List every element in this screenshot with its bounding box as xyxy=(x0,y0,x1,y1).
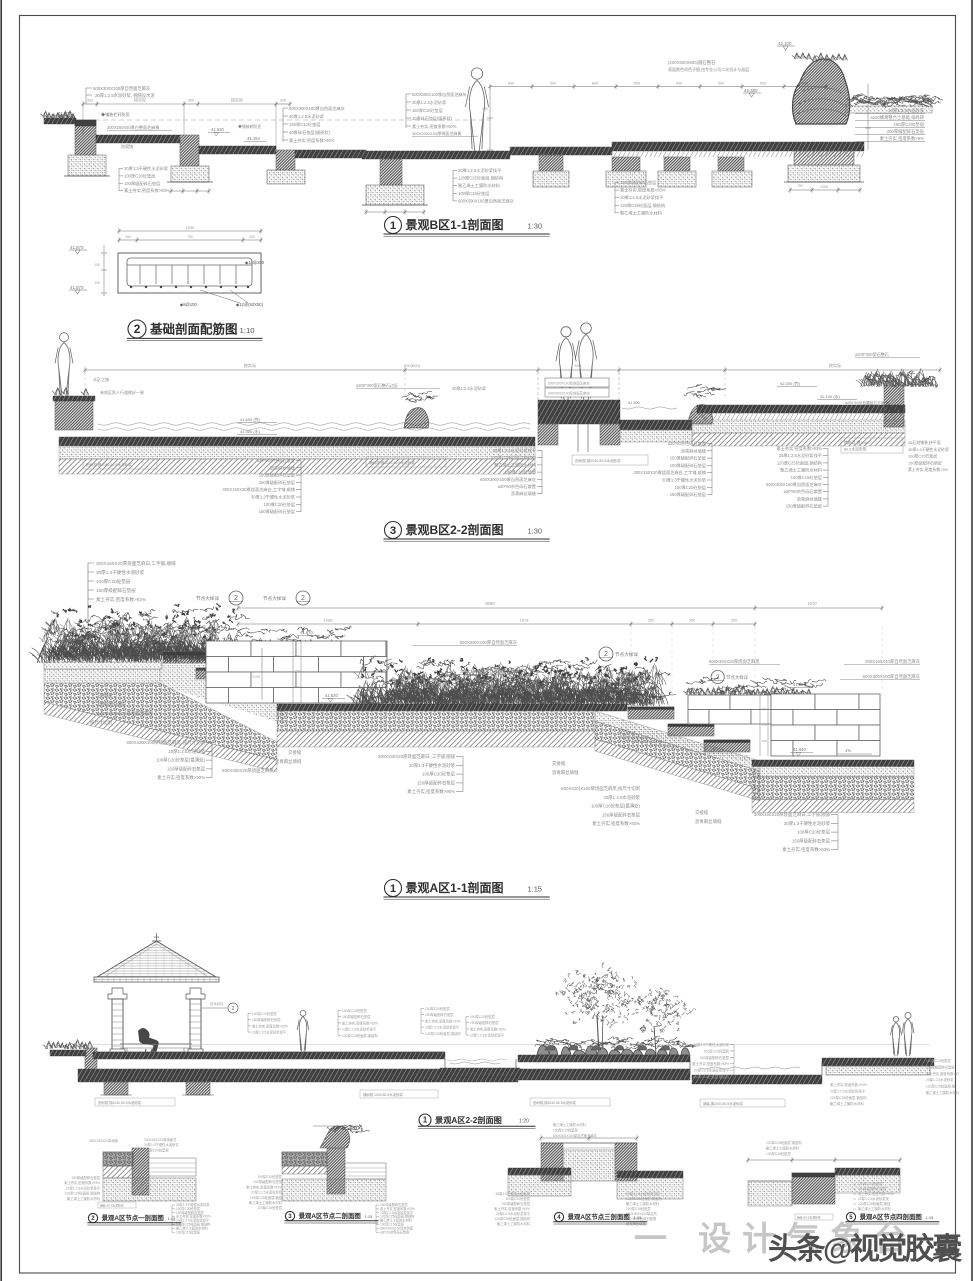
svg-text:聚乙烯土工膜防水材料: 聚乙烯土工膜防水材料 xyxy=(830,1101,865,1106)
svg-text:20厚1:2.5水泥砂浆找: 20厚1:2.5水泥砂浆找 xyxy=(251,1190,282,1195)
svg-text:交接缝: 交接缝 xyxy=(695,809,709,816)
svg-text:120厚C25砼面层,钢结构: 120厚C25砼面层,钢结构 xyxy=(425,1031,461,1036)
svg-text:1:15: 1:15 xyxy=(528,885,542,894)
svg-text:100厚C20砼垫层: 100厚C20砼垫层 xyxy=(264,501,295,508)
svg-text:聚乙烯土工膜防水材料: 聚乙烯土工膜防水材料 xyxy=(626,1201,660,1206)
svg-text:20厚1:2.5水泥砂浆找平: 20厚1:2.5水泥砂浆找平 xyxy=(830,1088,866,1093)
svg-text:750: 750 xyxy=(797,184,803,188)
svg-text:铺装,80.5水泥砂浆: 铺装,80.5水泥砂浆 xyxy=(797,1215,821,1220)
svg-text:300X150X20厚烧面芝麻白, 工字铺,顺铺: 300X150X20厚烧面芝麻白, 工字铺,顺铺 xyxy=(378,753,456,760)
svg-text:20厚1:2.5水泥砂浆找平: 20厚1:2.5水泥砂浆找平 xyxy=(342,1027,377,1032)
svg-text:150厚级配碎石垫层: 150厚级配碎石垫层 xyxy=(71,1175,100,1180)
svg-text:景观A区节点一剖面图: 景观A区节点一剖面图 xyxy=(102,1213,164,1222)
svg-text:20厚1:2.5水泥砂浆: 20厚1:2.5水泥砂浆 xyxy=(603,794,640,801)
svg-text:聚乙烯土工膜防水材料: 聚乙烯土工膜防水材料 xyxy=(858,1206,892,1211)
svg-text:素土夯实,密度系数>93%: 素土夯实,密度系数>93% xyxy=(252,1023,288,1028)
svg-text:500: 500 xyxy=(550,82,556,86)
svg-text:沥青麻丝填缝: 沥青麻丝填缝 xyxy=(275,758,302,765)
svg-text:350: 350 xyxy=(648,618,655,623)
svg-text:100厚C15砼垫层: 100厚C15砼垫层 xyxy=(766,1151,791,1156)
svg-text:150厚级配碎石垫层: 150厚级配碎石垫层 xyxy=(417,779,456,786)
svg-text:150厚级配碎石垫层: 150厚级配碎石垫层 xyxy=(167,765,206,772)
svg-text:素土夯实,密度系数>93%: 素土夯实,密度系数>93% xyxy=(620,187,666,194)
svg-text:41.670: 41.670 xyxy=(300,630,313,635)
svg-text:节点大样详: 节点大样详 xyxy=(263,595,286,602)
svg-text:素土夯实,密度系数>90%: 素土夯实,密度系数>90% xyxy=(157,774,205,781)
svg-text:1878: 1878 xyxy=(520,618,530,623)
svg-text:铺树观,1040,80.5水泥砂浆: 铺树观,1040,80.5水泥砂浆 xyxy=(363,1092,403,1097)
svg-text:表面颜色同色子图,由专业公司二次设计与面层: 表面颜色同色子图,由专业公司二次设计与面层 xyxy=(668,66,749,72)
svg-text:600X300X100厚自然面芝麻灰: 600X300X100厚自然面芝麻灰 xyxy=(480,476,536,483)
svg-text:150: 150 xyxy=(294,654,299,658)
svg-text:150厚级配碎石垫层: 150厚级配碎石垫层 xyxy=(501,1201,530,1206)
svg-text:300: 300 xyxy=(87,99,93,103)
svg-text:900: 900 xyxy=(482,107,488,111)
svg-text:40厚碎石垫层(随原状): 40厚碎石垫层(随原状) xyxy=(289,129,331,136)
svg-text:150厚级配碎石垫层: 150厚级配碎石垫层 xyxy=(908,460,942,465)
svg-text:100厚C15砼垫层: 100厚C15砼垫层 xyxy=(791,474,822,481)
svg-text:1:30: 1:30 xyxy=(528,527,542,536)
svg-text:750: 750 xyxy=(187,235,193,239)
svg-text:4: 4 xyxy=(557,1214,561,1221)
svg-text:素土夯实,密度系数>9%: 素土夯实,密度系数>9% xyxy=(880,135,924,142)
svg-text:30厚1:3干硬性水泥砂浆: 30厚1:3干硬性水泥砂浆 xyxy=(409,762,456,769)
svg-text:150: 150 xyxy=(761,723,766,727)
svg-text:150: 150 xyxy=(761,707,766,711)
svg-text:(200X600X600)踏石整石: (200X600X600)踏石整石 xyxy=(668,59,716,66)
svg-text:景观A区2-2剖面图: 景观A区2-2剖面图 xyxy=(435,1115,502,1125)
svg-text:100厚C20砼垫层: 100厚C20砼垫层 xyxy=(470,1014,495,1019)
svg-text:2: 2 xyxy=(604,651,608,658)
svg-text:100厚C20砼垫层: 100厚C20砼垫层 xyxy=(144,1147,169,1152)
svg-text:20厚1:2.5水泥砂浆找平: 20厚1:2.5水泥砂浆找平 xyxy=(470,1033,505,1038)
svg-text:150厚级配碎石垫层: 150厚级配碎石垫层 xyxy=(259,508,295,515)
svg-text:300X150X20厚烧面芝麻白,工字铺,顺铺: 300X150X20厚烧面芝麻白,工字铺,顺铺 xyxy=(754,811,831,818)
svg-text:300X150X20厚烧面芝麻白,工字铺,顺铺: 300X150X20厚烧面芝麻白,工字铺,顺铺 xyxy=(96,560,176,567)
svg-text:120厚C25砼面层,钢结构: 120厚C25砼面层,钢结构 xyxy=(494,1216,530,1221)
svg-text:150厚级配碎石垫层: 150厚级配碎石垫层 xyxy=(792,837,831,844)
svg-text:1:15: 1:15 xyxy=(168,1216,176,1221)
svg-text:30厚1:2.5水泥砂浆: 30厚1:2.5水泥砂浆 xyxy=(888,107,925,114)
svg-text:600X300X100厚自然面芝麻灰: 600X300X100厚自然面芝麻灰 xyxy=(93,85,151,92)
svg-text:150厚级配碎石垫层: 150厚级配碎石垫层 xyxy=(425,1012,454,1017)
svg-text:30厚1:3干硬性水泥砂浆: 30厚1:3干硬性水泥砂浆 xyxy=(124,165,169,172)
svg-text:120厚C25砼面层,钢结构: 120厚C25砼面层,钢结构 xyxy=(342,1033,378,1038)
svg-text:交接缝: 交接缝 xyxy=(98,692,112,699)
svg-text:100厚C15砼垫层: 100厚C15砼垫层 xyxy=(257,1205,282,1210)
svg-text:300X250X80厚白整面芝麻黄: 300X250X80厚白整面芝麻黄 xyxy=(107,124,159,130)
svg-text:30厚1:2.5水泥砂浆: 30厚1:2.5水泥砂浆 xyxy=(412,99,446,105)
svg-text:1:15: 1:15 xyxy=(365,1214,373,1219)
svg-text:2: 2 xyxy=(91,1215,95,1222)
svg-text:20厚1:2.5水泥砂浆找平: 20厚1:2.5水泥砂浆找平 xyxy=(620,194,663,201)
svg-text:350: 350 xyxy=(689,618,696,623)
svg-text:100厚C20砼垫层: 100厚C20砼垫层 xyxy=(422,771,456,778)
svg-text:25石刻铺装,拼平面: 25石刻铺装,拼平面 xyxy=(908,440,941,445)
svg-text:沥青麻丝填缝: 沥青麻丝填缝 xyxy=(511,490,537,497)
svg-text:1:10: 1:10 xyxy=(240,326,255,335)
svg-text:600X350X100厚烧面芝麻黑: 600X350X100厚烧面芝麻黑 xyxy=(98,710,153,717)
svg-text:有效区防人行道做好一致: 有效区防人行道做好一致 xyxy=(100,389,144,395)
svg-text:沥青麻丝填缝: 沥青麻丝填缝 xyxy=(681,447,707,454)
svg-text:聚乙烯土工膜防水材料: 聚乙烯土工膜防水材料 xyxy=(494,461,537,468)
svg-text:交接缝: 交接缝 xyxy=(288,749,302,756)
svg-text:2: 2 xyxy=(301,595,305,602)
svg-text:节点大样详: 节点大样详 xyxy=(615,651,638,658)
svg-text:41.520: 41.520 xyxy=(325,693,338,698)
svg-text:600(600): 600(600) xyxy=(404,363,421,368)
svg-text:素土夯实,密度系数>93%: 素土夯实,密度系数>93% xyxy=(96,596,146,603)
svg-text:按实际: 按实际 xyxy=(829,362,842,369)
svg-text:200厚级配碎石垫层: 200厚级配碎石垫层 xyxy=(887,128,925,135)
svg-text:100厚C20砼垫层: 100厚C20砼垫层 xyxy=(96,578,131,585)
svg-text:120厚C25砼面层,钢结构: 120厚C25砼面层,钢结构 xyxy=(64,1191,100,1196)
svg-text:铺树观,拥1040,80.5水泥砂浆: 铺树观,拥1040,80.5水泥砂浆 xyxy=(369,460,415,465)
svg-text:素土夯实,密度系数>93%: 素土夯实,密度系数>93% xyxy=(858,1191,894,1196)
svg-text:20厚1:2.5水泥砂浆找平: 20厚1:2.5水泥砂浆找平 xyxy=(496,1211,531,1216)
svg-text:5050: 5050 xyxy=(485,601,495,606)
svg-text:田树观,拥1040,80.5水泥砂浆: 田树观,拥1040,80.5水泥砂浆 xyxy=(98,1100,142,1105)
svg-text:聚乙烯土工膜防水材料: 聚乙烯土工膜防水材料 xyxy=(780,467,823,474)
svg-text:100厚C20砼垫层: 100厚C20砼垫层 xyxy=(908,454,937,459)
svg-text:100厚级配碎石垫层: 100厚级配碎石垫层 xyxy=(259,479,295,486)
svg-text:30厚1:3干硬性水泥砂浆: 30厚1:3干硬性水泥砂浆 xyxy=(784,820,831,827)
svg-text:120厚C25砼面层,钢结构: 120厚C25砼面层,钢结构 xyxy=(626,1196,662,1201)
svg-text:30厚1:3干硬性水泥砂浆: 30厚1:3干硬性水泥砂浆 xyxy=(495,1191,530,1196)
svg-text:100厚C20砼垫层: 100厚C20砼垫层 xyxy=(505,1196,530,1201)
svg-text:2100: 2100 xyxy=(252,675,260,679)
svg-text:120厚C25砼面层,钢结构: 120厚C25砼面层,钢结构 xyxy=(830,1095,867,1100)
svg-text:100厚级配碎石垫层: 100厚级配碎石垫层 xyxy=(670,462,706,469)
svg-text:150厚级配碎石垫层: 150厚级配碎石垫层 xyxy=(96,587,136,594)
svg-text:150: 150 xyxy=(761,739,766,743)
svg-text:150: 150 xyxy=(249,235,255,239)
svg-text:150厚级配碎石垫层: 150厚级配碎石垫层 xyxy=(700,1055,730,1060)
svg-text:聚乙烯土工膜防水材料: 聚乙烯土工膜防水材料 xyxy=(497,1221,531,1226)
svg-text:20厚1:2.5水泥砂浆找平: 20厚1:2.5水泥砂浆找平 xyxy=(458,167,501,174)
svg-text:a30*60杂色砾石散置: a30*60杂色砾石散置 xyxy=(498,483,536,490)
svg-text:聚乙烯土工膜防水材料: 聚乙烯土工膜防水材料 xyxy=(553,1122,587,1127)
svg-text:聚乙烯土工膜防水材料: 聚乙烯土工膜防水材料 xyxy=(620,209,663,216)
svg-text:聚乙烯土工膜防水材料: 聚乙烯土工膜防水材料 xyxy=(458,182,501,189)
svg-text:1:15: 1:15 xyxy=(926,1215,934,1220)
svg-text:素土夯实,密度系数>93%: 素土夯实,密度系数>93% xyxy=(246,1184,282,1189)
svg-text:600X300X100厚自然面芝麻灰: 600X300X100厚自然面芝麻灰 xyxy=(458,197,514,204)
svg-text:a30*60杂色砾石散置: a30*60杂色砾石散置 xyxy=(784,488,822,495)
svg-text:田树观,拥1040,80.5水泥砂浆: 田树观,拥1040,80.5水泥砂浆 xyxy=(86,462,132,467)
svg-text:素土夯实,密度系数>93%: 素土夯实,密度系数>93% xyxy=(342,1020,378,1025)
svg-text:素土夯实,密度系数>93%: 素土夯实,密度系数>93% xyxy=(494,1206,530,1211)
svg-text:素土夯实,密度系数>93%: 素土夯实,密度系数>93% xyxy=(592,820,640,827)
svg-text:20厚1:2.5水泥砂浆: 20厚1:2.5水泥砂浆 xyxy=(168,748,205,755)
svg-text:41.600 (完): 41.600 (完) xyxy=(240,416,261,422)
svg-text:1930: 1930 xyxy=(186,226,194,230)
svg-text:30厚1:3干硬性水泥砂浆: 30厚1:3干硬性水泥砂浆 xyxy=(96,569,145,576)
svg-text:1%: 1% xyxy=(845,748,851,753)
svg-text:20厚1:2.5水泥砂浆找平: 20厚1:2.5水泥砂浆找平 xyxy=(252,1030,287,1035)
svg-text:100厚C20砼垫层: 100厚C20砼垫层 xyxy=(797,829,831,836)
svg-text:1: 1 xyxy=(390,883,397,895)
svg-text:沥青麻丝填缝: 沥青麻丝填缝 xyxy=(695,818,722,825)
svg-text:田树观,拥1040,80.5水泥砂浆: 田树观,拥1040,80.5水泥砂浆 xyxy=(575,458,621,463)
svg-text:20厚1:2.5水泥砂浆, 拥随设水泥: 20厚1:2.5水泥砂浆, 拥随设水泥 xyxy=(95,92,155,99)
svg-text:a200*60灰色蘑菇石平面 台: a200*60灰色蘑菇石平面 台 xyxy=(845,400,890,405)
svg-text:150厚级配碎石垫层: 150厚级配碎石垫层 xyxy=(342,1014,371,1019)
svg-text:◆12@(50X50): ◆12@(50X50) xyxy=(236,302,264,307)
svg-text:1:20: 1:20 xyxy=(519,1119,529,1125)
svg-text:◆铺装砖防亚: ◆铺装砖防亚 xyxy=(238,124,261,129)
svg-text:150厚级配碎石垫层: 150厚级配碎石垫层 xyxy=(259,472,295,479)
svg-text:100厚C20砼垫层: 100厚C20砼垫层 xyxy=(704,1048,730,1053)
svg-text:头条@视觉胶囊: 头条@视觉胶囊 xyxy=(768,1232,962,1266)
svg-text:20厚1:2.5水泥砂浆找: 20厚1:2.5水泥砂浆找 xyxy=(858,1196,889,1201)
svg-text:100厚C20砼垫层: 100厚C20砼垫层 xyxy=(425,1006,450,1011)
svg-text:600: 600 xyxy=(575,363,582,368)
svg-text:150厚级配碎石垫层: 150厚级配碎石垫层 xyxy=(670,491,706,498)
svg-text:120厚C25砼面层,钢结构: 120厚C25砼面层,钢结构 xyxy=(777,459,822,466)
svg-text:600X350X20厚烧面芝麻黑: 600X350X20厚烧面芝麻黑 xyxy=(222,767,274,774)
svg-text:150厚C10砼垫层: 150厚C10砼垫层 xyxy=(289,121,320,128)
svg-text:聚乙烯土工膜防水材料: 聚乙烯土工膜防水材料 xyxy=(766,1145,800,1150)
svg-text:150厚级配碎石垫层: 150厚级配碎石垫层 xyxy=(252,1017,281,1022)
svg-text:20厚1:2.5水泥砂浆找平: 20厚1:2.5水泥砂浆找平 xyxy=(493,447,536,454)
svg-text:◆14@200: ◆14@200 xyxy=(245,260,265,265)
svg-text:41.300: 41.300 xyxy=(628,401,640,405)
svg-text:41.570: 41.570 xyxy=(70,285,84,290)
svg-text:素土夯实,密度系数>93: 素土夯实,密度系数>93 xyxy=(926,1071,959,1076)
svg-text:41.300 (水): 41.300 (水) xyxy=(240,428,261,434)
svg-text:120厚C25砼面层,钢结: 120厚C25砼面层,钢结 xyxy=(858,1201,891,1206)
svg-text:◆8@100: ◆8@100 xyxy=(180,302,197,307)
svg-text:500: 500 xyxy=(760,82,766,86)
svg-text:按实际: 按实际 xyxy=(244,362,257,369)
svg-text:300X300X100厚烧面芝麻灰: 300X300X100厚烧面芝麻灰 xyxy=(548,391,590,396)
svg-text:按实际: 按实际 xyxy=(231,97,243,103)
svg-text:20厚1:2.5水泥砂浆找平: 20厚1:2.5水泥砂浆找平 xyxy=(626,1191,661,1196)
svg-text:300: 300 xyxy=(280,99,286,103)
svg-text:30厚1:2.5水泥砂浆: 30厚1:2.5水泥砂浆 xyxy=(289,113,325,120)
svg-text:120厚C25砼面层,钢结构: 120厚C25砼面层,钢结构 xyxy=(491,454,536,461)
svg-text:聚乙烯土工膜防水材料: 聚乙烯土工膜防水材料 xyxy=(926,1090,960,1095)
svg-text:100厚C20砼垫层: 100厚C20砼垫层 xyxy=(675,484,706,491)
svg-text:素土夯实,密度系数>93%: 素土夯实,密度系数>93% xyxy=(470,1026,506,1031)
svg-text:600X350X20厚烧面芝麻黑: 600X350X20厚烧面芝麻黑 xyxy=(709,658,760,665)
svg-text:150厚级配碎石垫层: 150厚级配碎石垫层 xyxy=(620,179,656,186)
svg-text:3: 3 xyxy=(390,525,396,537)
svg-text:素土夯实,密度系数>93%: 素土夯实,密度系数>93% xyxy=(692,1061,729,1066)
svg-text:交接缝: 交接缝 xyxy=(552,760,566,767)
svg-text:100厚C20砼垫层(最薄处): 100厚C20砼垫层(最薄处) xyxy=(156,757,206,764)
svg-text:300X150X20厚烧面芝麻白,工字铺,顺铺: 300X150X20厚烧面芝麻白,工字铺,顺铺 xyxy=(633,469,706,476)
svg-text:沥青麻丝填缝: 沥青麻丝填缝 xyxy=(270,464,296,471)
svg-text:景观B区1-1剖面图: 景观B区1-1剖面图 xyxy=(406,217,504,232)
svg-text:30厚1:2.5水泥砂浆: 30厚1:2.5水泥砂浆 xyxy=(452,385,486,391)
svg-text:沥青麻丝填缝: 沥青麻丝填缝 xyxy=(98,701,125,708)
svg-text:40厚碎石垫层(随原状): 40厚碎石垫层(随原状) xyxy=(412,115,453,121)
svg-text:150厚级配碎石垫层: 150厚级配碎石垫层 xyxy=(786,503,822,510)
svg-text:a30*60杂色砾石散置: a30*60杂色砾石散置 xyxy=(257,457,295,464)
svg-text:素土夯实,密度系数>93%: 素土夯实,密度系数>93% xyxy=(830,1082,867,1087)
svg-text:600X300X100厚自然面芝麻灰: 600X300X100厚自然面芝麻灰 xyxy=(460,639,518,646)
svg-text:300X200X100厚锈面芝麻黄: 300X200X100厚锈面芝麻黄 xyxy=(412,130,461,136)
svg-text:600: 600 xyxy=(508,82,514,86)
svg-text:沥青麻丝填缝: 沥青麻丝填缝 xyxy=(797,495,823,502)
svg-text:42.380: 42.380 xyxy=(744,88,758,93)
svg-text:30厚1:3干硬性水泥砂浆: 30厚1:3干硬性水泥砂浆 xyxy=(693,1042,729,1047)
svg-text:铺树观,拥1040: 铺树观,拥1040 xyxy=(844,440,869,445)
svg-text:41.640: 41.640 xyxy=(793,747,806,752)
svg-text:素土夯实,密度系数>93%: 素土夯实,密度系数>93% xyxy=(124,187,170,194)
svg-text:沥青麻丝填缝: 沥青麻丝填缝 xyxy=(552,769,579,776)
svg-text:节点大样详: 节点大样详 xyxy=(196,595,219,602)
svg-text:100厚C15砼垫层: 100厚C15砼垫层 xyxy=(505,469,536,476)
svg-text:铺装,拥1040,80.5水泥砂浆: 铺装,拥1040,80.5水泥砂浆 xyxy=(703,1101,743,1106)
svg-text:2: 2 xyxy=(232,1006,235,1012)
svg-text:30厚1:3干硬性水泥砂浆: 30厚1:3干硬性水泥砂浆 xyxy=(144,1142,179,1147)
svg-text:20厚1:2.5水泥砂浆找平: 20厚1:2.5水泥砂浆找平 xyxy=(694,1068,730,1073)
svg-text:800: 800 xyxy=(592,82,598,86)
svg-text:素土夯实,密度系数>93%: 素土夯实,密度系数>93% xyxy=(425,1018,461,1023)
svg-text:1%: 1% xyxy=(465,694,471,699)
svg-text:2: 2 xyxy=(134,322,141,336)
svg-text:3: 3 xyxy=(288,1213,292,1220)
svg-text:600X420X100厚烧面芝麻黑, 按尺寸切割: 600X420X100厚烧面芝麻黑, 按尺寸切割 xyxy=(126,739,205,746)
svg-text:100厚C20砼垫层(最薄处): 100厚C20砼垫层(最薄处) xyxy=(591,803,641,810)
svg-text:基础剖面配筋图: 基础剖面配筋图 xyxy=(149,321,238,336)
svg-text:a220蜂窝整合土基础,排碎砖: a220蜂窝整合土基础,排碎砖 xyxy=(870,114,924,121)
svg-text:100厚C20砼垫层: 100厚C20砼垫层 xyxy=(858,1181,883,1186)
svg-text:180厚C200垫层: 180厚C200垫层 xyxy=(894,121,925,128)
svg-text:600X300X100厚自然面芝麻灰: 600X300X100厚自然面芝麻灰 xyxy=(863,673,921,680)
svg-text:300X150X40厚自然面芝麻灰: 300X150X40厚自然面芝麻灰 xyxy=(460,668,516,675)
svg-text:20厚1:2.5水泥砂浆: 20厚1:2.5水泥砂浆 xyxy=(926,1077,954,1082)
svg-text:铺装,80.5水泥砂浆: 铺装,80.5水泥砂浆 xyxy=(100,1203,124,1208)
svg-text:a30*60杂色砾石散置: a30*60杂色砾石散置 xyxy=(668,440,706,447)
svg-text:聚乙烯土工膜防水材料: 聚乙烯土工膜防水材料 xyxy=(67,1196,101,1201)
svg-text:150: 150 xyxy=(294,685,299,689)
svg-text:150厚级配碎石垫层: 150厚级配碎石垫层 xyxy=(253,1179,282,1184)
svg-text:150厚级配碎石垫层: 150厚级配碎石垫层 xyxy=(670,455,706,462)
svg-text:300X150X20厚烧面芝麻白,工字铺,顺铺: 300X150X20厚烧面芝麻白,工字铺,顺铺 xyxy=(222,486,295,493)
svg-text:500: 500 xyxy=(676,82,682,86)
svg-text:120厚C25砼面层,钢结: 120厚C25砼面层,钢结 xyxy=(250,1195,283,1200)
svg-text:120厚C25砼面层,钢: 120厚C25砼面层,钢 xyxy=(926,1084,956,1089)
svg-text:素土夯实,密度系数>93%: 素土夯实,密度系数>93% xyxy=(782,846,830,853)
svg-text:600X300X100厚自然: 600X300X100厚自然 xyxy=(626,1211,657,1216)
svg-text:20厚1:2.5水泥砂浆找平: 20厚1:2.5水泥砂浆找平 xyxy=(425,1025,460,1030)
svg-text:600X300X100厚自然面芝麻灰: 600X300X100厚自然面芝麻灰 xyxy=(553,1133,598,1138)
svg-text:1088: 1088 xyxy=(324,618,334,623)
svg-text:100厚C20砼垫层: 100厚C20砼垫层 xyxy=(257,1174,282,1179)
svg-text:42.100: 42.100 xyxy=(778,41,792,46)
svg-text:300X150X20厚烧面芝: 300X150X20厚烧面芝 xyxy=(144,1137,177,1142)
svg-text:100厚C15砼垫层: 100厚C15砼垫层 xyxy=(553,1127,578,1132)
svg-text:1: 1 xyxy=(390,220,397,232)
svg-text:41.154: 41.154 xyxy=(247,136,260,141)
svg-text:1:30: 1:30 xyxy=(528,222,542,231)
svg-text:a200*300宽石整石边区: a200*300宽石整石边区 xyxy=(356,382,398,388)
svg-text:100厚C15砼垫层: 100厚C15砼垫层 xyxy=(458,190,489,197)
svg-text:600X300X100厚自然面芝麻灰: 600X300X100厚自然面芝麻灰 xyxy=(412,91,467,97)
svg-text:350: 350 xyxy=(731,618,738,623)
svg-text:41.630: 41.630 xyxy=(211,127,224,132)
svg-text:30厚1:3干硬性水泥砂浆: 30厚1:3干硬性水泥砂浆 xyxy=(662,477,707,484)
svg-text:素土夯实,密度系数>90%: 素土夯实,密度系数>90% xyxy=(289,137,335,144)
svg-text:120厚C25砼面层,钢结构: 120厚C25砼面层,钢结构 xyxy=(458,175,503,182)
svg-text:景观A区1-1剖面图: 景观A区1-1剖面图 xyxy=(406,880,504,895)
svg-text:80.5水泥砂浆: 80.5水泥砂浆 xyxy=(844,447,867,452)
svg-text:素土夯实,密度系数>9%: 素土夯实,密度系数>9% xyxy=(908,467,949,472)
svg-text:1070: 1070 xyxy=(807,601,817,606)
svg-text:41.870: 41.870 xyxy=(70,245,84,250)
svg-text:600X300X100厚自然面芝麻灰: 600X300X100厚自然面芝麻灰 xyxy=(289,105,345,112)
svg-text:聚乙烯土工膜防水材料: 聚乙烯土工膜防水材料 xyxy=(249,1200,283,1205)
svg-text:300: 300 xyxy=(188,99,194,103)
svg-text:42.300 (完): 42.300 (完) xyxy=(780,380,801,386)
svg-text:水区之城: 水区之城 xyxy=(93,376,109,382)
svg-text:150厚级配碎石垫层: 150厚级配碎石垫层 xyxy=(926,1064,955,1069)
svg-text:150厚级配碎石垫层: 150厚级配碎石垫层 xyxy=(602,811,641,818)
svg-text:100: 100 xyxy=(95,281,101,285)
svg-text:150厚级配碎石垫层: 150厚级配碎石垫层 xyxy=(858,1186,887,1191)
svg-text:按尺寸切割: 按尺寸切割 xyxy=(90,719,113,726)
svg-text:1200: 1200 xyxy=(820,185,828,189)
svg-text:500: 500 xyxy=(634,82,640,86)
svg-text:2: 2 xyxy=(234,595,238,602)
svg-text:600X300X100厚自然面芝麻灰: 600X300X100厚自然面芝麻灰 xyxy=(766,481,822,488)
svg-text:1: 1 xyxy=(423,1116,428,1125)
svg-text:42.100 (水): 42.100 (水) xyxy=(820,393,841,399)
svg-text:100厚C15砼垫层: 100厚C15砼垫层 xyxy=(626,1206,651,1211)
svg-text:100厚C20砼垫层: 100厚C20砼垫层 xyxy=(124,172,155,179)
svg-text:300X150X40厚自然面芝麻灰: 300X150X40厚自然面芝麻灰 xyxy=(865,658,921,665)
svg-text:150: 150 xyxy=(294,669,299,673)
svg-text:150厚级配碎石垫层: 150厚级配碎石垫层 xyxy=(470,1020,499,1025)
svg-text:a200*300宽石整石: a200*300宽石整石 xyxy=(855,351,889,357)
svg-text:素土夯实,密度系数>90%: 素土夯实,密度系数>90% xyxy=(412,123,457,129)
svg-text:100厚C20砼垫层: 100厚C20砼垫层 xyxy=(926,1058,951,1063)
svg-text:100厚C20砼垫层: 100厚C20砼垫层 xyxy=(252,1011,277,1016)
svg-text:120厚C25砼面层,钢结构: 120厚C25砼面层,钢结构 xyxy=(620,202,665,209)
svg-text:景观B区2-2剖面图: 景观B区2-2剖面图 xyxy=(406,522,504,537)
svg-text:300X150X20厚烧面: 300X150X20厚烧面 xyxy=(89,1138,119,1143)
svg-text:150: 150 xyxy=(95,263,101,267)
svg-text:20厚1:2.5水泥砂浆找平: 20厚1:2.5水泥砂浆找平 xyxy=(779,452,822,459)
svg-text:150厚级配碎石垫层: 150厚级配碎石垫层 xyxy=(124,180,160,187)
svg-text:素土夯实,密度系数>90%: 素土夯实,密度系数>90% xyxy=(407,788,455,795)
svg-text:a30*60杂色砾石散置: a30*60杂色砾石散置 xyxy=(380,1229,409,1234)
svg-text:30厚1:3干硬性水泥砂浆: 30厚1:3干硬性水泥砂浆 xyxy=(908,447,949,452)
svg-text:景观A区节点二剖面图: 景观A区节点二剖面图 xyxy=(299,1211,361,1220)
svg-text:150: 150 xyxy=(125,235,131,239)
svg-text:30厚1:3干硬性水泥砂浆: 30厚1:3干硬性水泥砂浆 xyxy=(251,494,296,501)
svg-text:节点大样详: 节点大样详 xyxy=(726,674,748,681)
svg-text:500: 500 xyxy=(718,82,724,86)
svg-text:100厚C20砼垫层: 100厚C20砼垫层 xyxy=(342,1008,367,1013)
svg-text:田树观,拥1040,80.5水泥砂浆: 田树观,拥1040,80.5水泥砂浆 xyxy=(533,1100,577,1105)
svg-text:素土夯实,密度系数>93%: 素土夯实,密度系数>93% xyxy=(64,1180,100,1185)
svg-text:20厚1:2.5水泥砂浆找平: 20厚1:2.5水泥砂浆找平 xyxy=(66,1185,101,1190)
svg-text:120厚C25砼面层,钢结构: 120厚C25砼面层,钢结构 xyxy=(692,1074,729,1079)
svg-text:600X420(X100厚烧面芝麻黑,按尺寸切割: 600X420(X100厚烧面芝麻黑,按尺寸切割 xyxy=(561,785,640,792)
svg-text:仿木纹柱: 仿木纹柱 xyxy=(210,1001,224,1006)
svg-text:◆铺装栏杆防亚: ◆铺装栏杆防亚 xyxy=(101,111,130,117)
svg-text:100厚C15砼垫层: 100厚C15砼垫层 xyxy=(176,1229,200,1234)
svg-text:防腐蚀: 防腐蚀 xyxy=(121,143,133,149)
svg-text:景观A区节点三剖面图: 景观A区节点三剖面图 xyxy=(568,1212,630,1221)
svg-text:41.390: 41.390 xyxy=(793,682,806,687)
svg-text:素土夯实,密度系数>93%: 素土夯实,密度系数>93% xyxy=(777,445,823,452)
